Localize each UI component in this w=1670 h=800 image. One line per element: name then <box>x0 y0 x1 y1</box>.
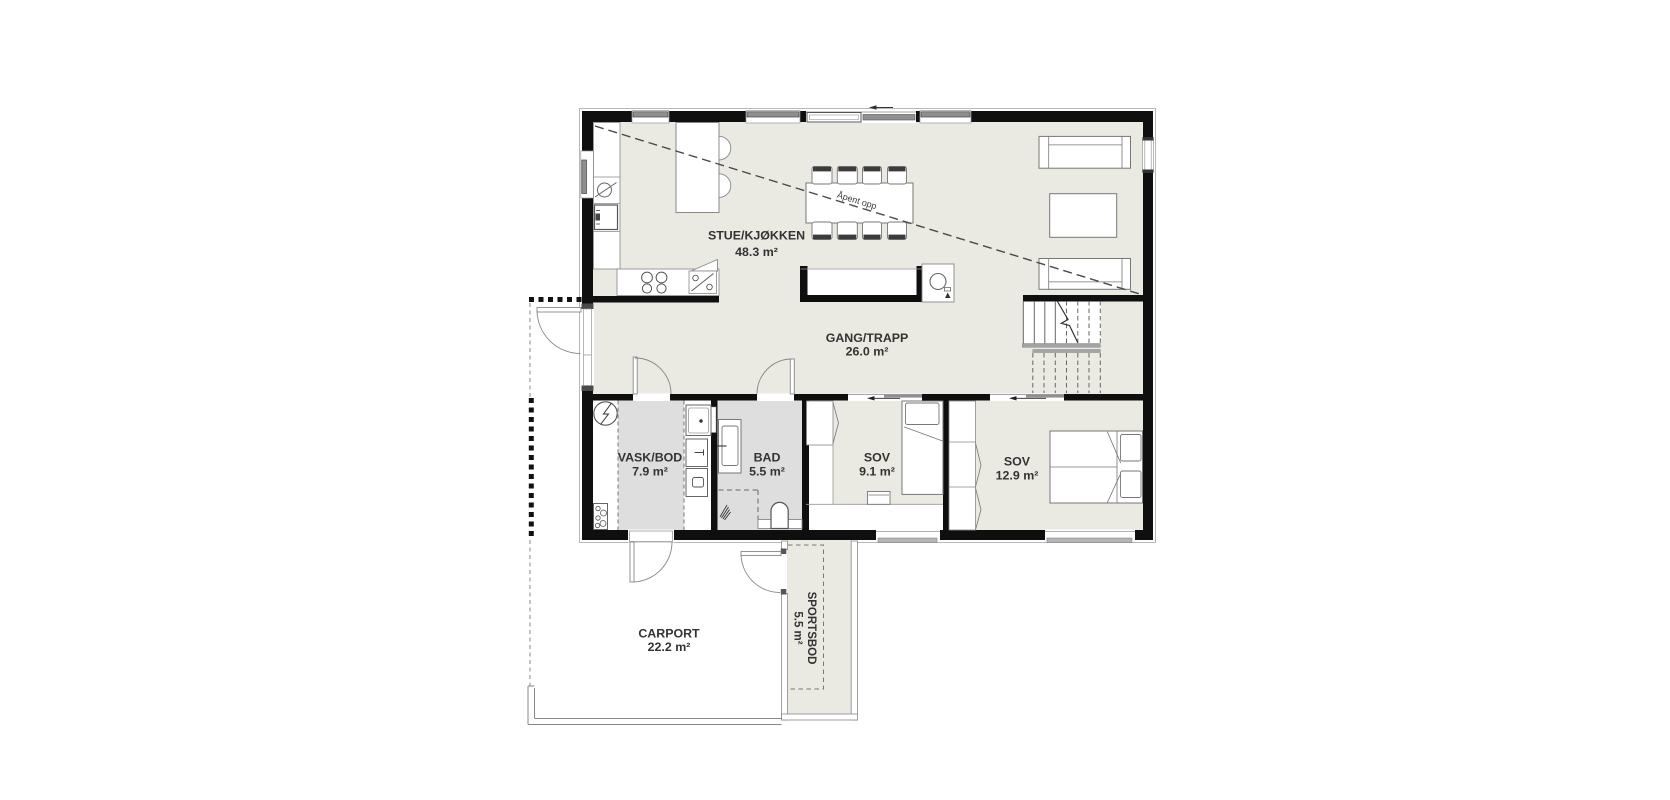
svg-text:12.9 m²: 12.9 m² <box>996 469 1039 483</box>
svg-text:7.9 m²: 7.9 m² <box>632 465 668 479</box>
svg-text:22.2 m²: 22.2 m² <box>648 640 691 654</box>
svg-text:GANG/TRAPP: GANG/TRAPP <box>826 331 909 345</box>
svg-text:STUE/KJØKKEN: STUE/KJØKKEN <box>708 229 805 243</box>
svg-text:26.0 m²: 26.0 m² <box>846 345 889 359</box>
svg-text:VASK/BOD: VASK/BOD <box>618 451 683 465</box>
svg-text:SOV: SOV <box>864 451 891 465</box>
svg-text:SOV: SOV <box>1004 455 1031 469</box>
svg-text:48.3 m²: 48.3 m² <box>735 245 778 259</box>
svg-text:BAD: BAD <box>754 451 781 465</box>
svg-text:9.1 m²: 9.1 m² <box>859 465 895 479</box>
svg-text:5.5 m²: 5.5 m² <box>749 465 785 479</box>
svg-text:CARPORT: CARPORT <box>638 627 700 641</box>
